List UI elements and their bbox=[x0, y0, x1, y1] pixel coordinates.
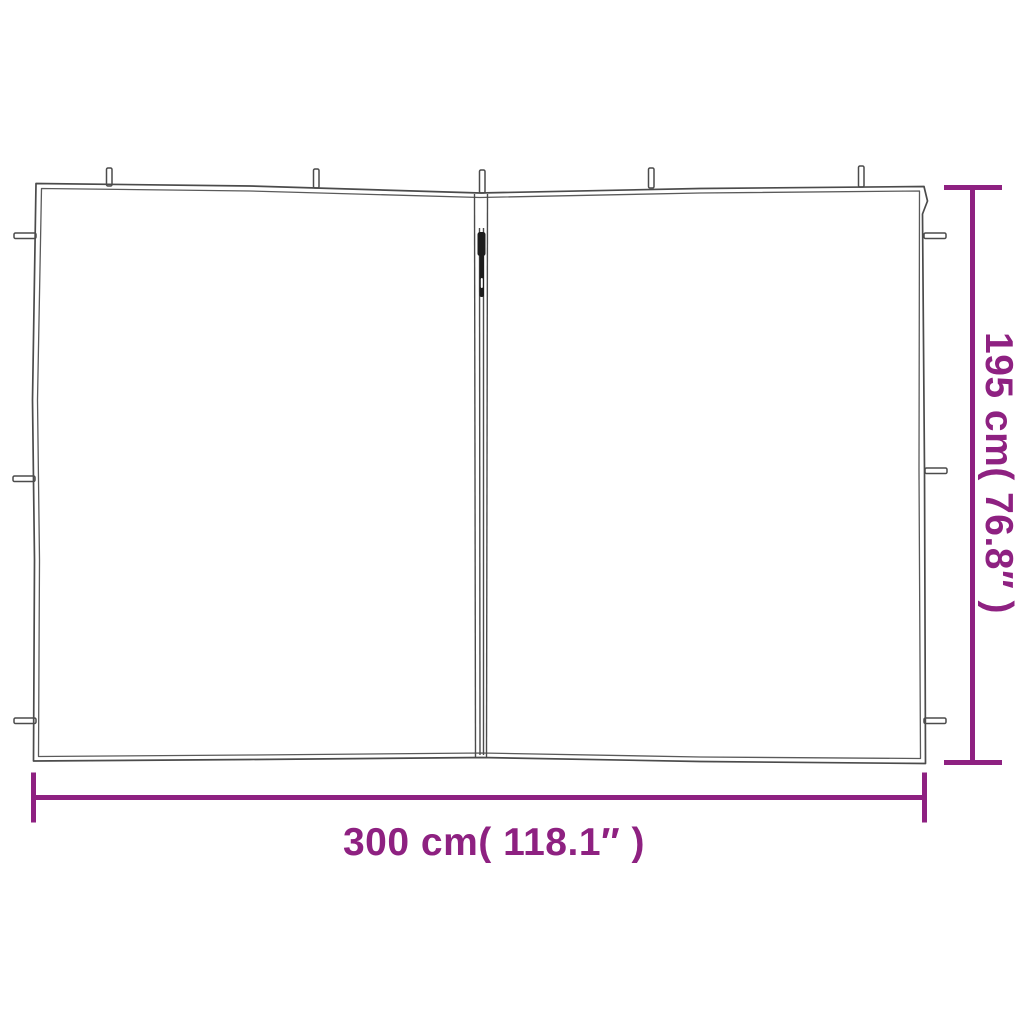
left-ties bbox=[13, 233, 36, 724]
right-tie-icon bbox=[924, 718, 946, 724]
top-loop-icon bbox=[107, 168, 113, 186]
width-dimension-line bbox=[34, 773, 925, 823]
zipper-teeth-left bbox=[480, 228, 481, 755]
zipper-tape-right bbox=[487, 194, 488, 757]
sidewall-dimension-diagram: 300 cm( 118.1″ ) 195 cm( 76.8″ ) bbox=[0, 0, 1024, 1024]
zipper-pull-tab-icon bbox=[480, 254, 485, 297]
left-tie-icon bbox=[13, 476, 35, 482]
top-loop-icon bbox=[649, 168, 655, 188]
right-tie-icon bbox=[925, 468, 947, 474]
top-loops bbox=[107, 166, 865, 193]
left-tie-icon bbox=[14, 718, 36, 724]
top-loop-icon bbox=[859, 166, 865, 187]
zipper bbox=[475, 194, 488, 757]
top-loop-icon bbox=[480, 170, 486, 193]
right-tie-icon bbox=[924, 233, 946, 239]
zipper-tape-left bbox=[475, 194, 476, 757]
right-ties bbox=[924, 233, 947, 724]
diagram-canvas: 300 cm( 118.1″ ) 195 cm( 76.8″ ) bbox=[0, 0, 1024, 1024]
zipper-slider bbox=[478, 232, 486, 297]
sidewall-drawing bbox=[13, 166, 947, 764]
dimension-labels: 300 cm( 118.1″ ) 195 cm( 76.8″ ) bbox=[343, 332, 1020, 864]
left-tie-icon bbox=[14, 233, 36, 239]
top-loop-icon bbox=[314, 169, 320, 188]
zipper-slider-body-icon bbox=[478, 232, 486, 256]
height-dimension-label: 195 cm( 76.8″ ) bbox=[977, 332, 1020, 614]
zipper-pull-hole bbox=[481, 278, 483, 288]
width-dimension-label: 300 cm( 118.1″ ) bbox=[343, 821, 645, 864]
